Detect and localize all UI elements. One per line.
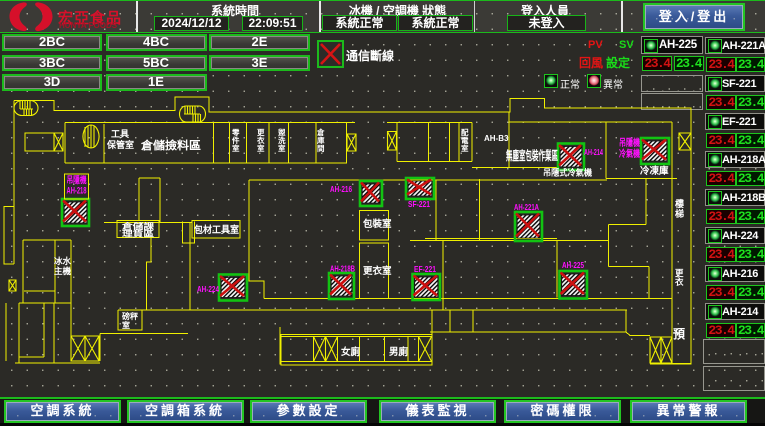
svg-text:保管室: 保管室 bbox=[106, 139, 134, 150]
svg-text:理貨區: 理貨區 bbox=[122, 229, 154, 239]
svg-text:女廁: 女廁 bbox=[341, 346, 361, 358]
svg-text:配電室: 配電室 bbox=[461, 128, 469, 153]
svg-text:冰水: 冰水 bbox=[54, 256, 72, 266]
svg-text:AH-218: AH-218 bbox=[67, 186, 87, 196]
svg-text:衣: 衣 bbox=[675, 277, 684, 287]
svg-text:倉儲撿料區: 倉儲撿料區 bbox=[140, 138, 201, 152]
svg-text:SF-221: SF-221 bbox=[408, 199, 430, 209]
svg-text:梯: 梯 bbox=[675, 208, 684, 219]
svg-text:包裝室: 包裝室 bbox=[362, 218, 392, 230]
svg-text:預: 預 bbox=[673, 327, 686, 341]
svg-text:AH-218B: AH-218B bbox=[330, 264, 355, 274]
svg-text:AH-225: AH-225 bbox=[562, 260, 584, 270]
svg-text:包材工具室: 包材工具室 bbox=[193, 224, 239, 236]
svg-text:無塵室包裝作業區: 無塵室包裝作業區 bbox=[506, 148, 558, 163]
svg-text:吊隱式冷氣機: 吊隱式冷氣機 bbox=[543, 168, 592, 178]
svg-text:AH-221A: AH-221A bbox=[514, 202, 539, 212]
svg-text:AH-B3: AH-B3 bbox=[484, 134, 509, 143]
svg-text:倉庫間: 倉庫間 bbox=[316, 127, 325, 153]
svg-text:冷凍庫: 冷凍庫 bbox=[640, 165, 669, 177]
svg-text:男廁: 男廁 bbox=[389, 346, 409, 358]
svg-text:更衣室: 更衣室 bbox=[257, 128, 265, 153]
svg-text:AH-214: AH-214 bbox=[584, 147, 603, 157]
svg-text:室: 室 bbox=[122, 320, 130, 330]
svg-text:工具: 工具 bbox=[111, 129, 129, 139]
svg-text:主機: 主機 bbox=[54, 266, 72, 276]
svg-text:吊隱機: 吊隱機 bbox=[67, 174, 87, 185]
svg-text:AH-216: AH-216 bbox=[330, 184, 352, 194]
svg-text:EF-221: EF-221 bbox=[414, 264, 436, 274]
svg-text:更衣室: 更衣室 bbox=[363, 265, 392, 277]
svg-text:磅秤: 磅秤 bbox=[122, 311, 138, 321]
svg-text:吊隱機: 吊隱機 bbox=[619, 137, 640, 149]
svg-text:零件室: 零件室 bbox=[231, 127, 240, 153]
svg-text:盥洗室: 盥洗室 bbox=[278, 127, 286, 153]
svg-text:樓: 樓 bbox=[675, 198, 684, 209]
svg-text:冷氣機: 冷氣機 bbox=[619, 148, 640, 160]
svg-text:AH-224: AH-224 bbox=[197, 284, 219, 294]
